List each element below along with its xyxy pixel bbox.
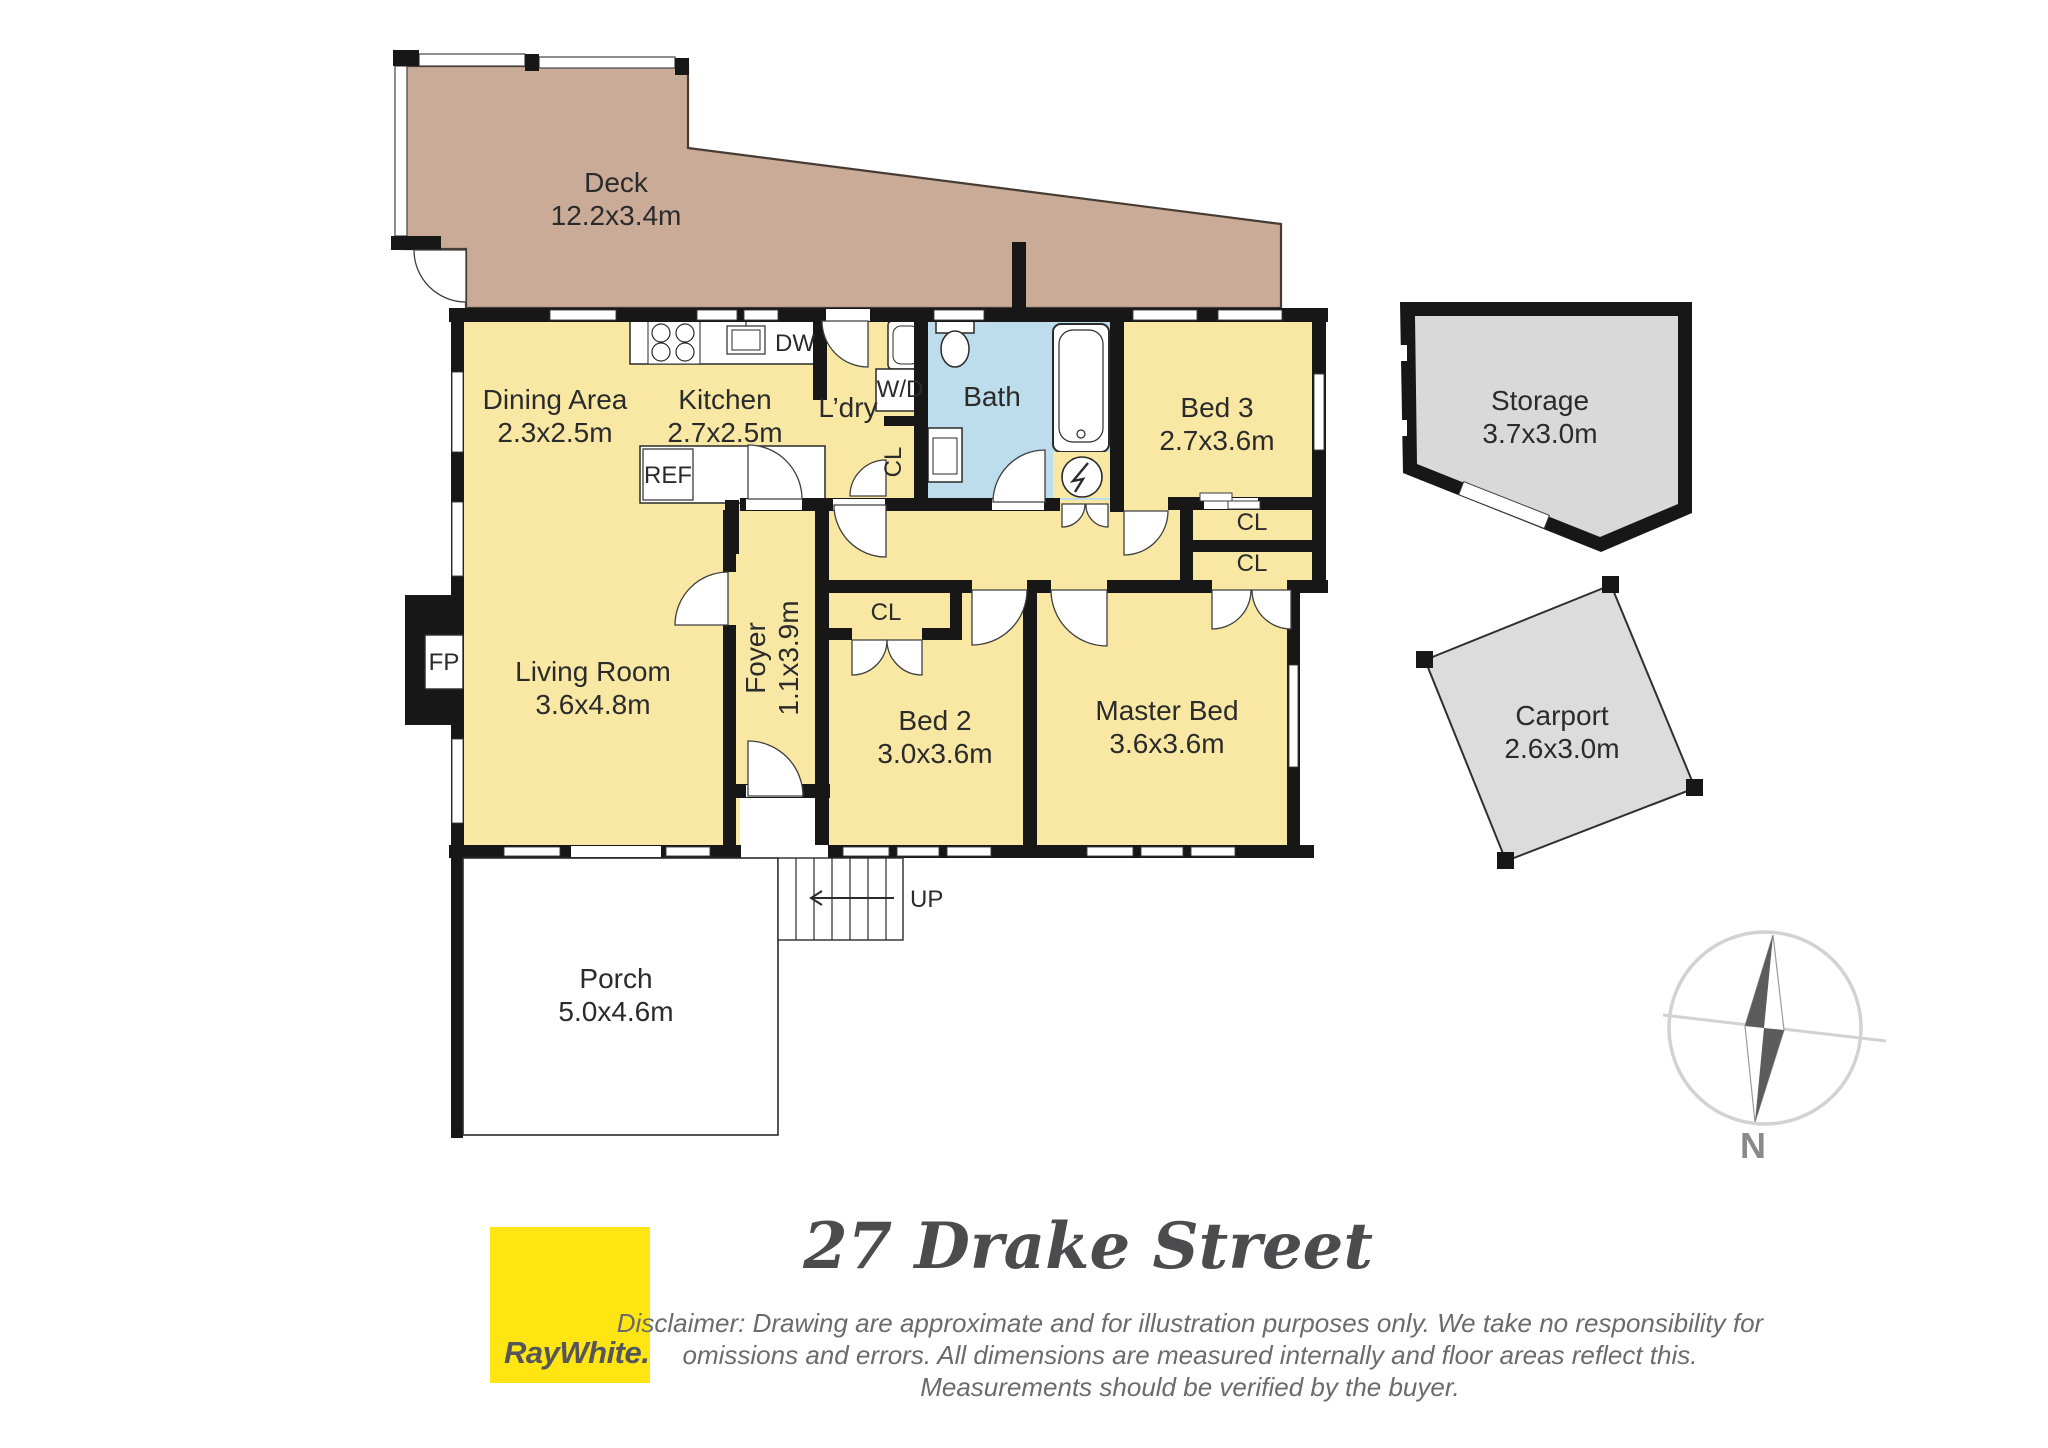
laundry-closet-label: CL (880, 447, 907, 478)
floorplan-drawing: N Deck 12.2x3.4m Dining Area 2.3x2.5m Ki… (0, 0, 2048, 1448)
bath-label: Bath (963, 381, 1021, 412)
wall-bed2-closet-a (828, 628, 852, 640)
entry-landing (740, 798, 828, 847)
bed2-label: Bed 2 (898, 705, 971, 736)
bed3-dims: 2.7x3.6m (1159, 425, 1274, 456)
window (843, 847, 889, 856)
raywhite-logo-text: RayWhite. (504, 1335, 649, 1370)
master-dims: 3.6x3.6m (1109, 728, 1224, 759)
dishwasher-label: DW (775, 330, 815, 357)
living-dims: 3.6x4.8m (535, 689, 650, 720)
opening-foyer (746, 499, 802, 510)
window (697, 310, 737, 320)
porch-dims: 5.0x4.6m (558, 996, 673, 1027)
deck-railing (419, 54, 525, 66)
closet1-label: CL (1237, 509, 1268, 536)
wall-bath-left (914, 308, 928, 498)
bathtub-inner (1059, 330, 1103, 442)
window (452, 502, 463, 576)
stove-burner (652, 324, 670, 342)
window (1141, 847, 1183, 856)
kitchen-dims: 2.7x2.5m (667, 417, 782, 448)
wall-living-right-lower (723, 625, 736, 845)
window (947, 847, 991, 856)
window (1314, 374, 1324, 450)
master-label: Master Bed (1095, 695, 1238, 726)
opening-deck-door (826, 309, 870, 321)
stove-burner (676, 324, 694, 342)
carport-post (1686, 779, 1703, 796)
storage-dims: 3.7x3.0m (1482, 418, 1597, 449)
carport-dims: 2.6x3.0m (1504, 733, 1619, 764)
deck-area (391, 50, 1281, 310)
bathtub-drain (1077, 430, 1085, 438)
washer-dryer-label: W/D (877, 376, 924, 403)
window (550, 310, 616, 320)
footer: RayWhite. 27 Drake Street Disclaimer: Dr… (490, 1209, 1765, 1402)
wall-water-heater-right (1110, 452, 1124, 512)
deck-floor (403, 66, 1281, 308)
wall-hall-south-c (1107, 580, 1212, 593)
water-heater-closet (1053, 452, 1112, 498)
wall-hall-south-a (815, 580, 972, 593)
window (934, 310, 984, 320)
deck-wall-segment (391, 236, 441, 250)
deck-post (393, 50, 419, 66)
window (1218, 310, 1282, 320)
storage-label: Storage (1491, 385, 1589, 416)
dining-label: Dining Area (483, 384, 628, 415)
porch-stairs (463, 858, 903, 1135)
wall-hall-south-b (1027, 580, 1051, 593)
kitchen-sink-basin (732, 330, 760, 350)
page-title: 27 Drake Street (802, 1209, 1373, 1284)
carport-post (1497, 852, 1514, 869)
window (1191, 847, 1235, 856)
fireplace-label: FP (429, 649, 460, 676)
window (1087, 847, 1133, 856)
slider-panel (1228, 501, 1260, 509)
wall-bed2-master-divider (1023, 592, 1037, 845)
floorplan-page: N Deck 12.2x3.4m Dining Area 2.3x2.5m Ki… (0, 0, 2048, 1448)
wall-laundry-closet-stub (884, 416, 916, 426)
carport-post (1602, 576, 1619, 593)
dining-dims: 2.3x2.5m (497, 417, 612, 448)
kitchen-label: Kitchen (678, 384, 771, 415)
deck-post (525, 54, 539, 71)
stove-burner (652, 343, 670, 361)
window (452, 739, 463, 823)
wall-living-right-upper (723, 510, 736, 572)
disclaimer-line-3: Measurements should be verified by the b… (920, 1372, 1460, 1402)
bed2-dims: 3.0x3.6m (877, 738, 992, 769)
refrigerator-label: REF (644, 462, 692, 489)
carport-label: Carport (1515, 700, 1609, 731)
storage-notch (1400, 345, 1407, 361)
carport-post (1416, 651, 1433, 668)
disclaimer-line-1: Disclaimer: Drawing are approximate and … (617, 1308, 1765, 1338)
toilet-bowl (941, 331, 969, 367)
foyer-label: Foyer (740, 622, 771, 694)
vanity-basin (933, 438, 957, 474)
wall-bed2-closet-right (950, 592, 962, 640)
stairs-up-label: UP (910, 886, 943, 913)
deck-railing (395, 66, 407, 236)
slider-panel (1200, 493, 1232, 501)
window (1133, 310, 1197, 320)
foyer-dims: 1.1x3.9m (773, 600, 804, 715)
compass-north-label: N (1740, 1125, 1766, 1166)
laundry-label: L’dry (818, 392, 877, 423)
porch-label: Porch (579, 963, 652, 994)
closet2-label: CL (1237, 550, 1268, 577)
window (897, 847, 939, 856)
deck-door (414, 250, 466, 302)
deck-post (675, 58, 689, 75)
opening-porch-doors (571, 846, 661, 857)
bed2-closet-label: CL (871, 599, 902, 626)
deck-label: Deck (584, 167, 649, 198)
window (744, 310, 778, 320)
disclaimer-line-2: omissions and errors. All dimensions are… (683, 1340, 1698, 1370)
storage-notch (1400, 420, 1407, 436)
deck-wall-stub (1012, 242, 1026, 310)
wall-porch-left (451, 858, 463, 1138)
window (504, 847, 560, 856)
deck-railing (539, 57, 675, 68)
deck-dims: 12.2x3.4m (551, 200, 682, 231)
stove-burner (676, 343, 694, 361)
water-heater-icon (1062, 457, 1102, 497)
window (666, 847, 710, 856)
window (452, 372, 463, 452)
living-label: Living Room (515, 656, 671, 687)
wall-bed3-left (1110, 308, 1124, 452)
window (1289, 665, 1298, 767)
bed3-label: Bed 3 (1180, 392, 1253, 423)
compass: N (1663, 932, 1886, 1166)
